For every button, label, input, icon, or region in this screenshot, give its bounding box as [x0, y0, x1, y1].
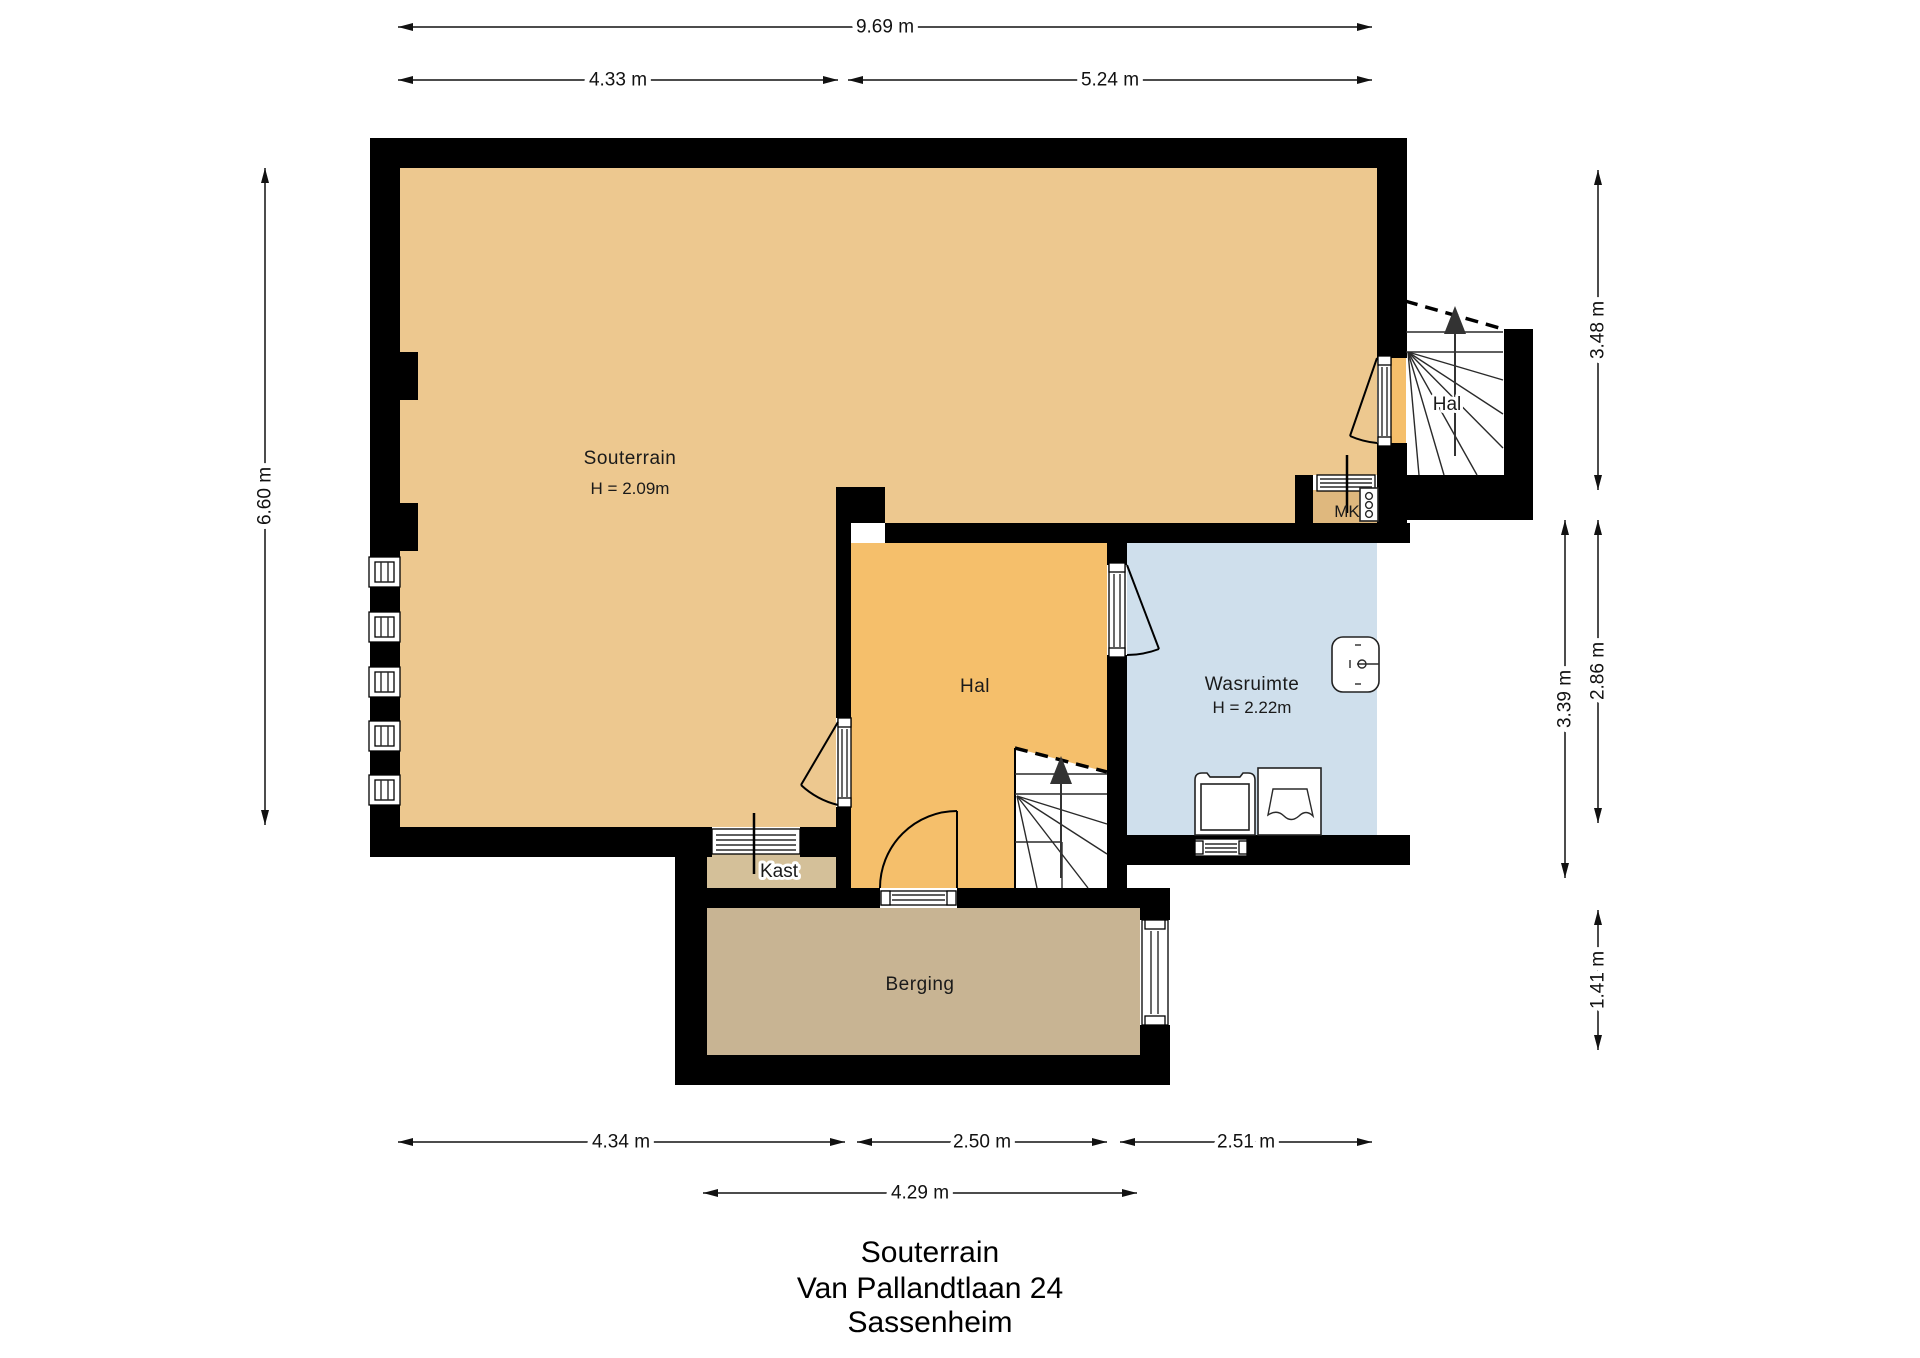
dim-right-middle-inner: 3.39 m [1555, 520, 1576, 878]
wall-stair-bottom [1407, 475, 1533, 520]
label-hal-center: Hal [960, 676, 990, 697]
dim-top-total: 9.69 m [398, 17, 1372, 38]
laundry-basket-icon [1258, 768, 1321, 835]
svg-text:1.41 m: 1.41 m [1588, 951, 1609, 1009]
svg-text:2.50 m: 2.50 m [953, 1132, 1011, 1153]
dim-bottom-left: 4.34 m [398, 1132, 845, 1153]
svg-text:9.69 m: 9.69 m [856, 17, 914, 38]
electricity-meter-icon [1360, 488, 1378, 521]
label-kast: Kast [760, 861, 799, 882]
wall-berging-bottom [675, 1055, 1170, 1085]
wall-divider-upper [1107, 543, 1127, 565]
label-hal-upper: Hal [1433, 394, 1462, 415]
window-icon [369, 721, 400, 751]
title-block: Souterrain Van Pallandtlaan 24 Sassenhei… [797, 1236, 1063, 1339]
wall-wasruimte-bottom [1127, 835, 1410, 865]
room-fills [400, 168, 1406, 1055]
wall-berging-right-lower [1140, 1025, 1170, 1085]
svg-text:5.24 m: 5.24 m [1081, 70, 1139, 91]
washing-machine-icon [1195, 773, 1255, 835]
dim-right-middle-outer: 2.86 m [1588, 520, 1609, 823]
wall-right-upper [1377, 138, 1407, 358]
vent-grille-icon [1195, 839, 1247, 856]
wall-stair-right [1504, 329, 1533, 475]
wall-right-mid [1377, 443, 1407, 523]
stairs-up-arrow-icon [1444, 306, 1466, 456]
title-city: Sassenheim [847, 1306, 1012, 1339]
label-mk: MK [1334, 502, 1360, 521]
stairs-hal [1015, 748, 1107, 888]
wall-bottom-mid [800, 827, 836, 857]
wall-divider-lower [1107, 655, 1127, 908]
window-icon [369, 557, 400, 587]
dim-right-bottom: 1.41 m [1588, 910, 1609, 1050]
wall-pilaster-1 [400, 352, 418, 400]
wall-berging-right-upper [1140, 888, 1170, 920]
window-icon [369, 612, 400, 642]
dim-bottom-total: 4.29 m [703, 1183, 1137, 1204]
dim-left-total: 6.60 m [255, 168, 276, 825]
label-souterrain: Souterrain [584, 448, 677, 469]
wall-berging-top-right [957, 888, 1170, 908]
label-berging: Berging [886, 974, 955, 995]
wall-top [370, 138, 1407, 168]
svg-text:4.33 m: 4.33 m [589, 70, 647, 91]
dim-top-left: 4.33 m [398, 70, 838, 91]
svg-text:4.29 m: 4.29 m [891, 1183, 949, 1204]
dim-bottom-middle: 2.50 m [857, 1132, 1107, 1153]
wall-bottom-left [370, 827, 712, 857]
svg-text:3.39 m: 3.39 m [1555, 670, 1576, 728]
sink-icon [1332, 637, 1379, 692]
svg-text:4.34 m: 4.34 m [592, 1132, 650, 1153]
berging-window-icon [1142, 920, 1168, 1025]
title-address: Van Pallandtlaan 24 [797, 1272, 1063, 1305]
stairs-upper [1405, 301, 1503, 475]
stair-hall-floor-strip [1391, 358, 1406, 443]
dim-top-right: 5.24 m [848, 70, 1372, 91]
svg-text:2.51 m: 2.51 m [1217, 1132, 1275, 1153]
label-souterrain-height: H = 2.09m [591, 479, 670, 498]
svg-text:6.60 m: 6.60 m [255, 467, 276, 525]
title-floor: Souterrain [861, 1236, 999, 1269]
wall-berging-left [675, 857, 707, 1085]
dim-right-top: 3.48 m [1588, 170, 1609, 490]
label-wasruimte: Wasruimte [1205, 674, 1300, 695]
svg-text:3.48 m: 3.48 m [1588, 301, 1609, 359]
label-wasruimte-height: H = 2.22m [1213, 698, 1292, 717]
wall-band-horizontal [885, 523, 1410, 543]
wall-mk-left [1295, 475, 1313, 523]
dim-bottom-right: 2.51 m [1120, 1132, 1372, 1153]
svg-text:2.86 m: 2.86 m [1588, 642, 1609, 700]
wall-hal-left-upper [836, 487, 851, 718]
wall-pilaster-2 [400, 503, 418, 551]
window-icon [369, 667, 400, 697]
window-icon [369, 775, 400, 805]
floorplan-canvas: Souterrain H = 2.09m Hal Hal Wasruimte H… [0, 0, 1920, 1358]
